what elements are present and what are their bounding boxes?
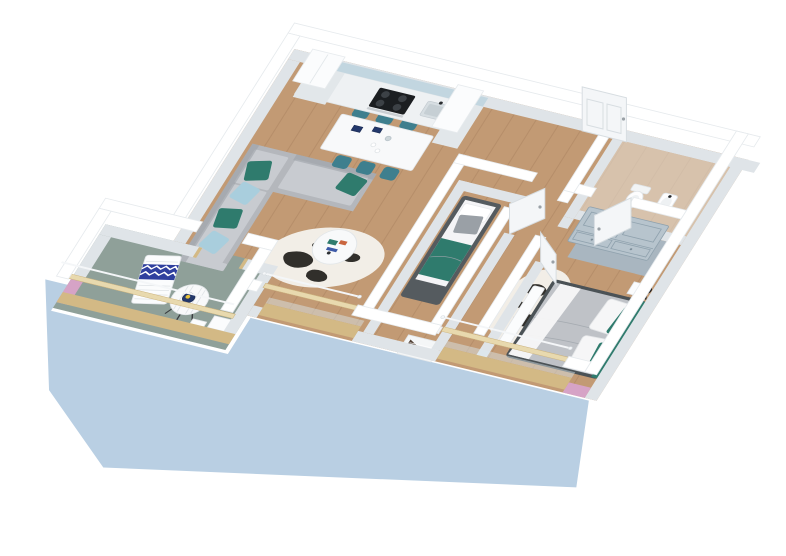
master-door-knob: [551, 260, 554, 263]
entrance-door-knob: [622, 117, 625, 120]
floorplan-render: [0, 0, 786, 556]
sofa-pillow-teal-1: [243, 161, 272, 181]
child-door-knob: [538, 205, 541, 208]
bathroom-door-knob: [597, 227, 600, 230]
floorplan-stage: [0, 0, 786, 556]
